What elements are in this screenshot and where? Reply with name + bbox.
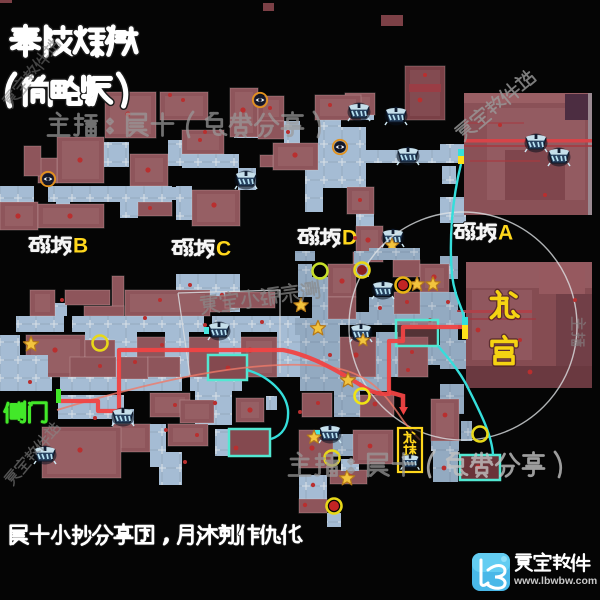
svg-text:C: C: [216, 238, 231, 261]
svg-text:www.lbwbw.com: www.lbwbw.com: [513, 575, 597, 587]
svg-text:A: A: [498, 222, 513, 245]
svg-text:B: B: [73, 235, 88, 258]
